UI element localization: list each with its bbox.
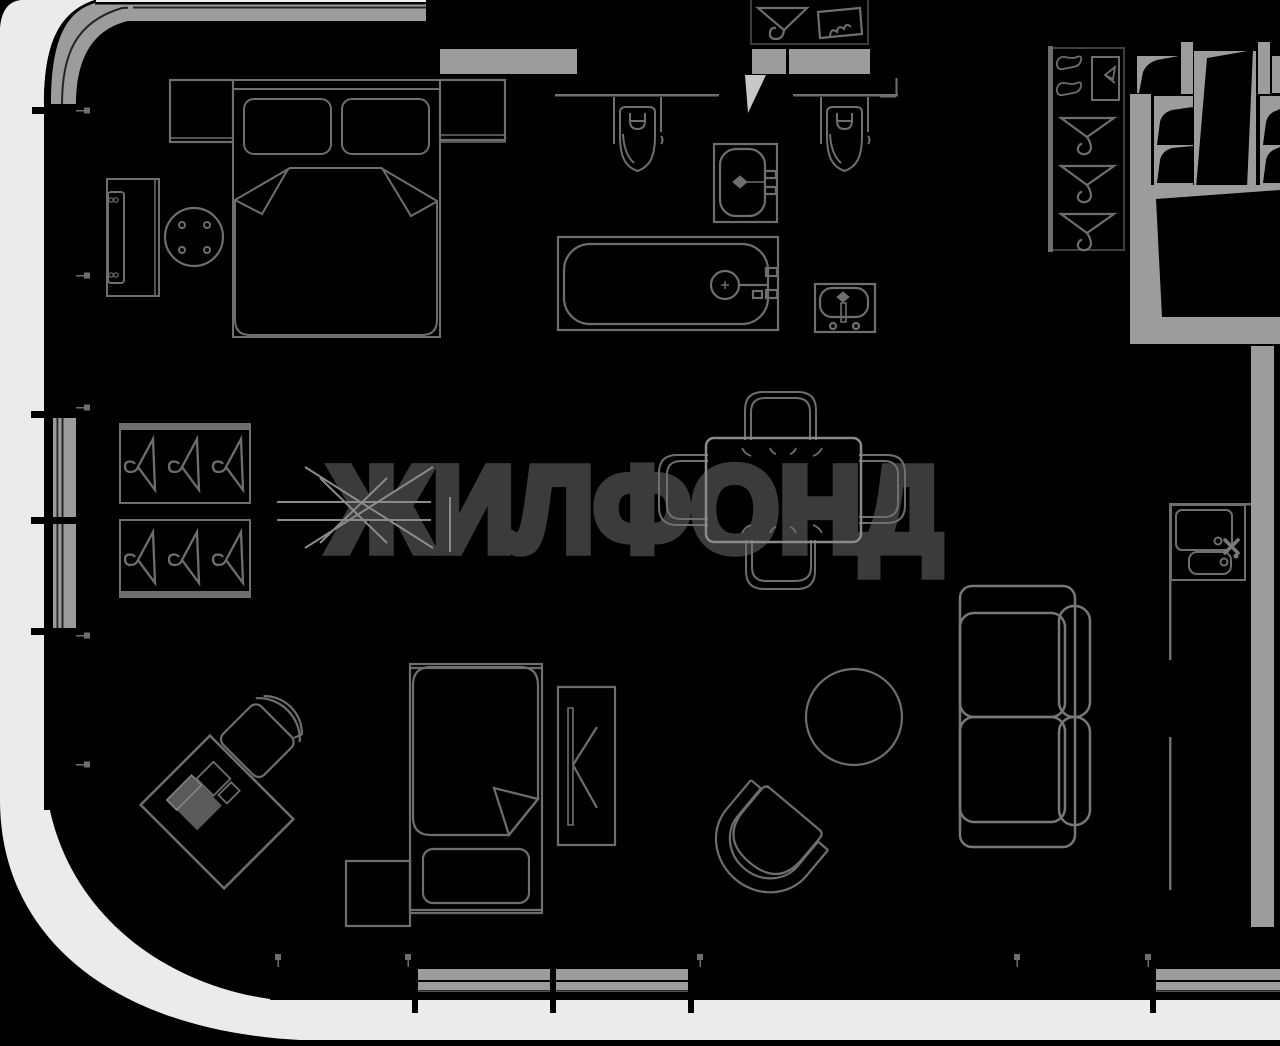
svg-text:ЖИЛФОНД: ЖИЛФОНД — [329, 441, 942, 577]
